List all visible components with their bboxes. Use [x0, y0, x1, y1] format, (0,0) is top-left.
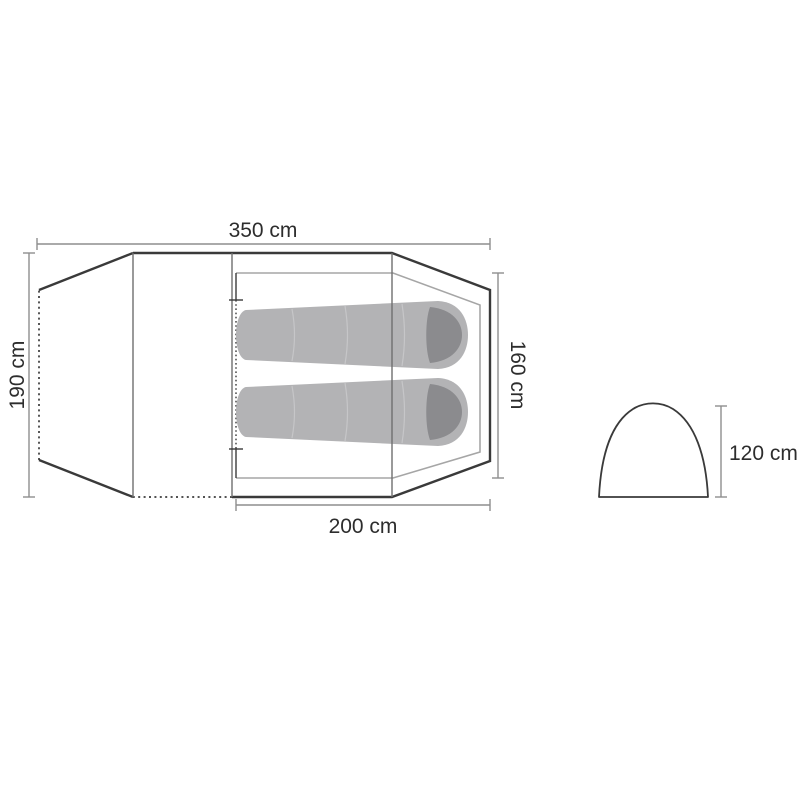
sleeping-bag-1 [236, 301, 468, 369]
dimension-peak-height: 120 cm [715, 406, 798, 497]
dim-label-outer-width: 190 cm [6, 341, 29, 410]
dim-label-inner-width: 160 cm [506, 341, 529, 410]
dim-label-inner-length: 200 cm [329, 515, 398, 538]
dimension-total-length: 350 cm [37, 219, 490, 250]
sleeping-bag-2 [236, 378, 468, 446]
dome-outline [599, 403, 708, 497]
tent-dimension-diagram: 350 cm 190 cm 160 cm 200 cm [0, 0, 800, 800]
outer-tent-bottom-left-slope [39, 460, 133, 497]
outer-tent-outline [39, 253, 490, 497]
outer-tent-top-left-slope [39, 253, 133, 290]
diagram-canvas: 350 cm 190 cm 160 cm 200 cm [0, 0, 800, 800]
dim-label-peak-height: 120 cm [729, 442, 798, 465]
floorplan-top-view: 350 cm 190 cm 160 cm 200 cm [6, 219, 529, 538]
dimension-inner-width: 160 cm [492, 273, 529, 478]
dimension-outer-width: 190 cm [6, 253, 35, 497]
dim-label-total-length: 350 cm [229, 219, 298, 242]
dimension-inner-length: 200 cm [236, 499, 490, 538]
side-profile-view: 120 cm [599, 403, 798, 497]
